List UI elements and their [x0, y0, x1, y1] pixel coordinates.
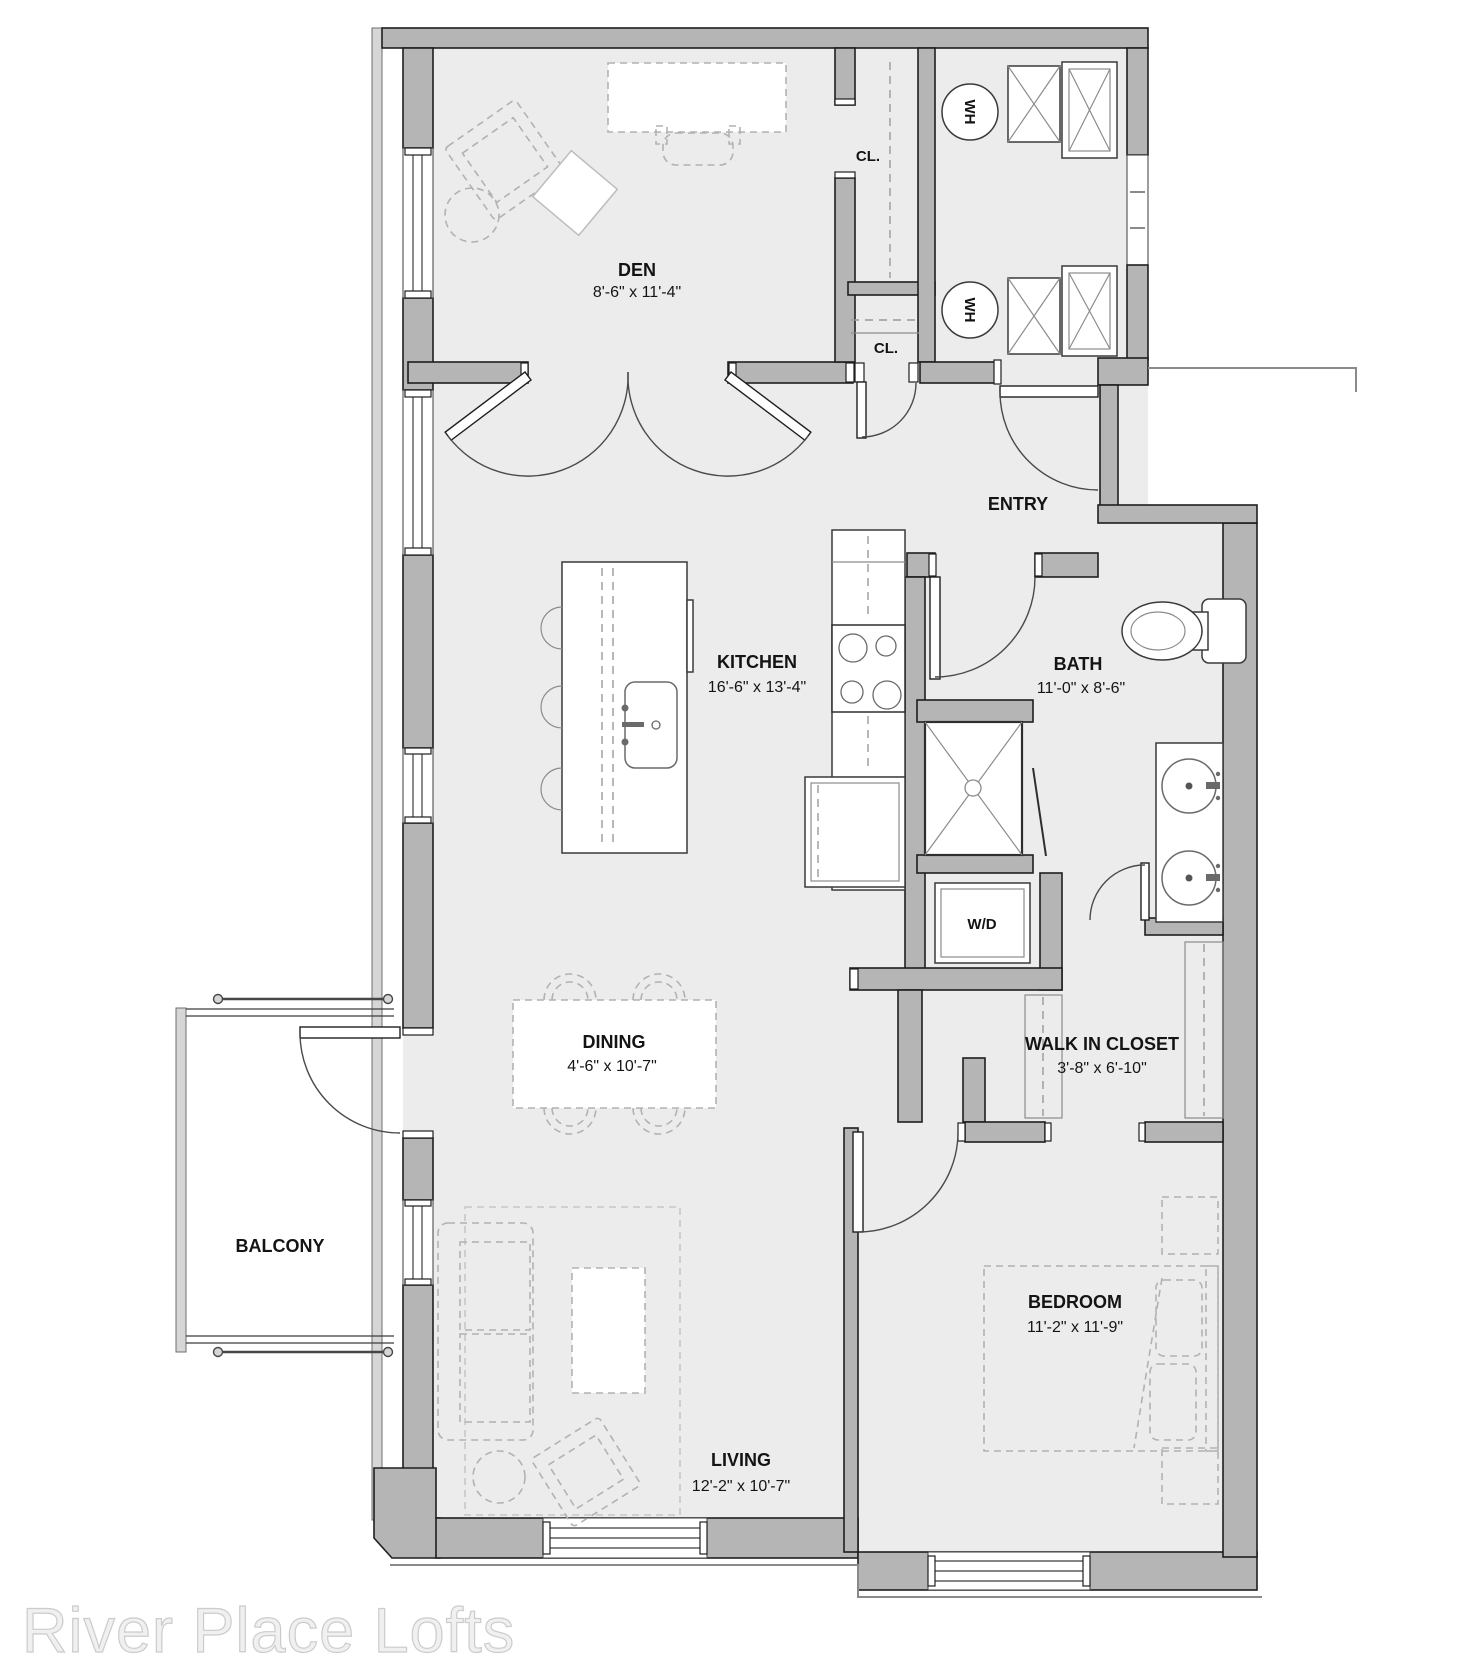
water-heater-2: WH	[942, 282, 998, 338]
room-dims-bath: 11'-0" x 8'-6"	[1037, 680, 1125, 697]
balcony-door-jamb	[403, 1028, 433, 1035]
sink-drain	[1186, 875, 1193, 882]
wall-left-outer-stripe	[372, 28, 382, 1520]
wall-corner-bottom-left	[374, 1468, 440, 1558]
wall-kitchen-bath	[905, 577, 925, 985]
wall-top	[382, 28, 1148, 48]
balcony-rail-bottom	[214, 1348, 393, 1357]
balcony-rail-left	[176, 1008, 186, 1352]
door-jamb	[855, 363, 864, 382]
window-living-left	[403, 1200, 433, 1285]
wall-hall-east	[898, 990, 922, 1122]
water-heater-label: WH	[961, 298, 978, 323]
wall-den-south-left	[408, 362, 528, 383]
island-sink	[622, 682, 678, 768]
wall-den-east	[835, 48, 855, 105]
coffee-table	[572, 1268, 645, 1393]
watermark-text: River Place Lofts	[22, 1596, 515, 1666]
room-dims-bedroom: 11'-2" x 11'-9"	[1027, 1319, 1123, 1336]
water-heater-1: WH	[942, 84, 998, 140]
door-jamb	[958, 1123, 965, 1141]
wall-right-wing	[1223, 523, 1257, 1557]
room-label-bath: BATH	[1054, 654, 1103, 674]
door-jamb	[1035, 554, 1042, 576]
window-dining	[403, 748, 433, 823]
dining-table	[513, 1000, 716, 1108]
room-label-living: LIVING	[711, 1450, 771, 1470]
room-label-bedroom: BEDROOM	[1028, 1292, 1122, 1312]
balcony-structure	[176, 995, 394, 1357]
wall-bedroom-north	[1145, 1122, 1223, 1142]
room-label-den: DEN	[618, 260, 656, 280]
room-dims-den: 8'-6" x 11'-4"	[593, 284, 681, 301]
wall-closet-column	[963, 1058, 985, 1122]
room-label-entry: ENTRY	[988, 494, 1048, 514]
room-label-closet-upper: CL.	[856, 148, 880, 165]
door-jamb	[994, 360, 1001, 384]
neighbor-wall-line	[1148, 368, 1356, 392]
water-heater-label: WH	[961, 100, 978, 125]
window-kitchen	[403, 390, 433, 555]
sink-drain	[1186, 783, 1193, 790]
wall-utility-left	[918, 48, 935, 362]
shower-drain	[965, 780, 981, 796]
floor-plan-page: WH WH	[0, 0, 1459, 1680]
window-bedroom-bottom	[928, 1552, 1090, 1590]
wall-utility-right	[1127, 265, 1148, 360]
balcony-door-opening	[403, 1028, 433, 1138]
room-label-closet-lower: CL.	[874, 340, 898, 357]
balcony-door	[300, 1027, 400, 1133]
window-den	[403, 148, 433, 298]
room-dims-living: 12'-2" x 10'-7"	[692, 1478, 790, 1495]
wall-entry-band	[920, 362, 1000, 383]
door-jamb	[835, 99, 855, 105]
wall-bedroom-north	[965, 1122, 1045, 1142]
door-jamb	[909, 363, 918, 382]
door-jamb	[1045, 1123, 1051, 1141]
balcony-rail-top	[214, 995, 393, 1004]
door-jamb	[846, 363, 854, 382]
stove	[832, 625, 905, 712]
wall-bath-top	[1098, 505, 1257, 523]
wall-left-pier	[403, 1138, 433, 1200]
floor-plan-drawing: WH WH	[0, 0, 1459, 1680]
balcony-door-jamb	[403, 1131, 433, 1138]
room-label-walkin-closet: WALK IN CLOSET	[1025, 1034, 1179, 1054]
washer-dryer-label: W/D	[967, 916, 996, 933]
wall-utility-right	[1127, 48, 1148, 155]
faucet	[622, 722, 644, 727]
faucet	[1206, 782, 1220, 789]
toilet	[1122, 599, 1246, 663]
room-label-balcony: BALCONY	[236, 1236, 325, 1256]
vanity	[1156, 743, 1223, 922]
door-jamb	[1139, 1123, 1145, 1141]
mechanical-unit	[1008, 266, 1117, 356]
wall-entry-right-column	[1100, 385, 1118, 507]
wall-shower-top	[917, 700, 1033, 722]
dishwasher-handle	[687, 600, 693, 672]
door-jamb	[835, 172, 855, 178]
wall-den-east	[835, 178, 855, 362]
window-living-bottom	[543, 1518, 707, 1558]
wall-entry-pier	[1098, 358, 1148, 385]
door-jamb	[929, 554, 936, 576]
wall-hall-north	[850, 968, 1062, 990]
room-dims-dining: 4'-6" x 10'-7"	[567, 1058, 657, 1075]
wall-left-pier	[403, 555, 433, 748]
wall-left-pier	[403, 48, 433, 148]
faucet	[1206, 874, 1220, 881]
utility-louver	[1127, 155, 1148, 265]
wall-left-pier	[403, 1285, 433, 1498]
wall-den-south-right	[728, 362, 853, 383]
room-dims-kitchen: 16'-6" x 13'-4"	[708, 679, 806, 696]
desk	[608, 63, 786, 132]
room-label-kitchen: KITCHEN	[717, 652, 797, 672]
wall-bath-entry-right	[1035, 553, 1098, 577]
room-label-dining: DINING	[583, 1032, 646, 1052]
kitchen-island	[541, 562, 693, 853]
door-jamb	[850, 969, 858, 989]
wall-shower-bottom	[917, 855, 1033, 873]
washer-dryer: W/D	[935, 883, 1030, 963]
wall-left-pier	[403, 823, 433, 1028]
room-dims-walkin-closet: 3'-8" x 6'-10"	[1057, 1060, 1147, 1077]
refrigerator	[805, 777, 905, 887]
